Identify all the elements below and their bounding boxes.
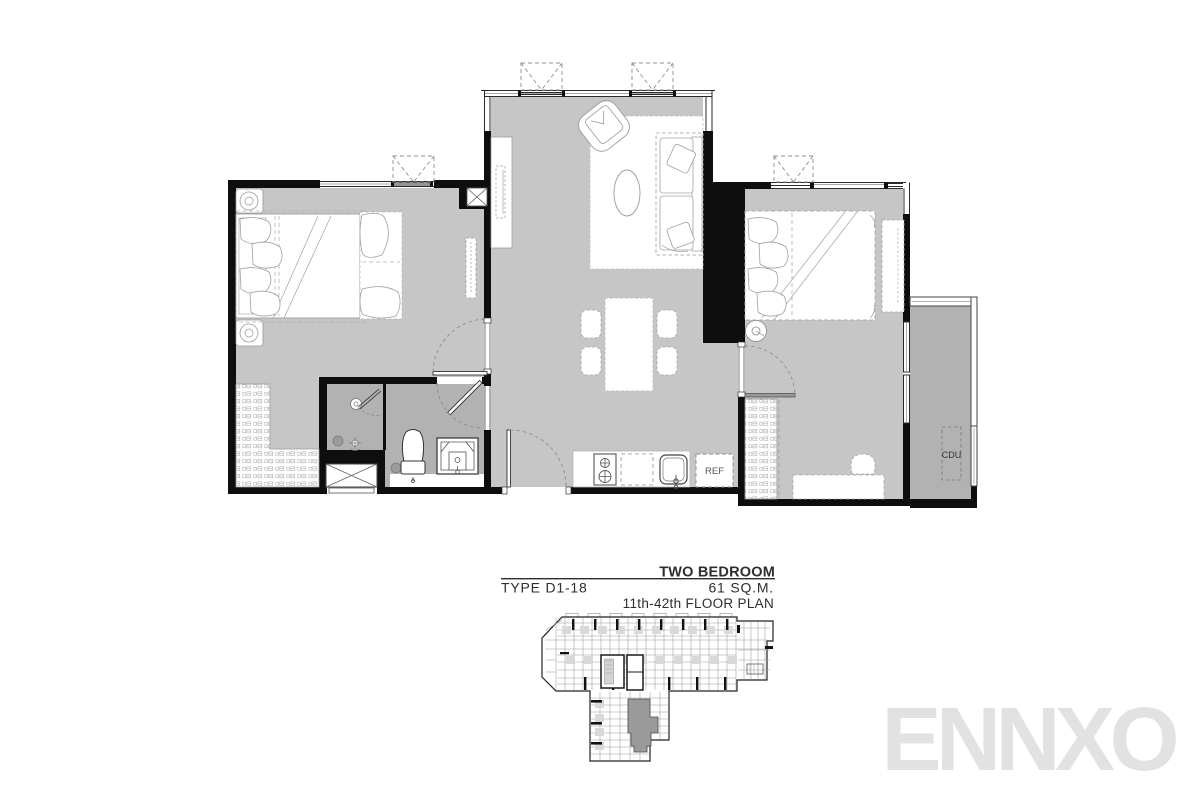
svg-text:TYPE D1-18: TYPE D1-18 <box>501 580 588 596</box>
svg-text:CDU: CDU <box>942 450 962 460</box>
svg-text:61 SQ.M.: 61 SQ.M. <box>708 580 774 596</box>
svg-text:ENNXO: ENNXO <box>881 690 1176 790</box>
svg-text:REF: REF <box>705 466 724 477</box>
svg-text:11th-42th FLOOR PLAN: 11th-42th FLOOR PLAN <box>623 596 774 611</box>
